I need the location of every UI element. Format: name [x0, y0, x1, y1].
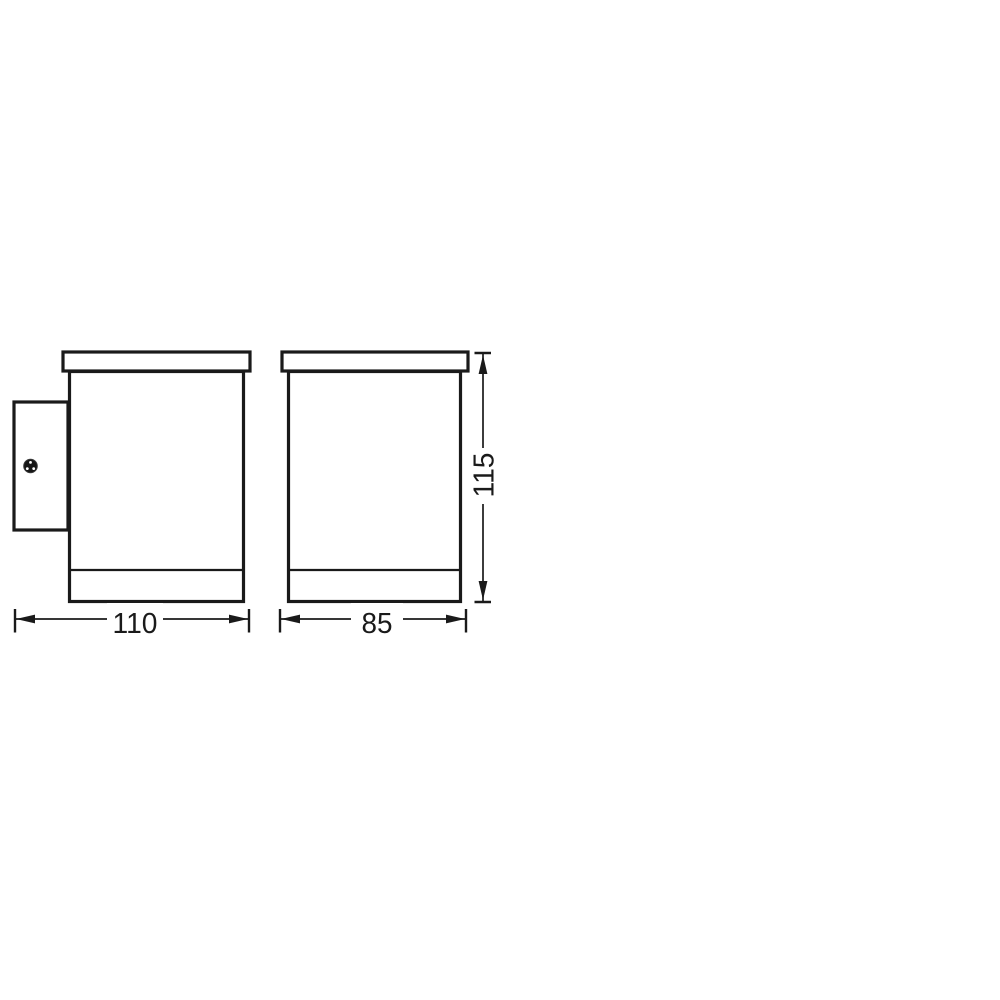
arrowhead-up: [479, 355, 488, 374]
arrowhead-right: [446, 615, 465, 624]
height-dimension-label: 115: [469, 453, 501, 498]
width-dimension-label: 85: [362, 608, 393, 640]
arrowhead-down: [479, 581, 488, 600]
screw-dot: [26, 467, 29, 470]
arrowhead-left: [281, 615, 300, 624]
mounting-screw: [24, 459, 38, 473]
screw-dot: [29, 461, 32, 464]
side-view-top-cap: [63, 352, 250, 371]
side-view: [14, 352, 250, 602]
dimension-height: 115: [468, 353, 501, 602]
front-view: [282, 352, 468, 602]
front-view-body: [289, 372, 461, 602]
arrowhead-left: [16, 615, 35, 624]
depth-dimension-label: 110: [113, 608, 158, 640]
technical-drawing-canvas: 110 85 115: [0, 0, 1000, 1000]
arrowhead-right: [229, 615, 248, 624]
luminaire-dimension-drawing: 110 85 115: [0, 0, 1000, 1000]
dimension-width: 85: [280, 603, 466, 640]
screw-dot: [32, 467, 35, 470]
dimension-depth: 110: [15, 603, 249, 640]
side-view-body: [70, 372, 244, 602]
front-view-top-cap: [282, 352, 468, 371]
wall-mount-bracket: [14, 402, 68, 530]
